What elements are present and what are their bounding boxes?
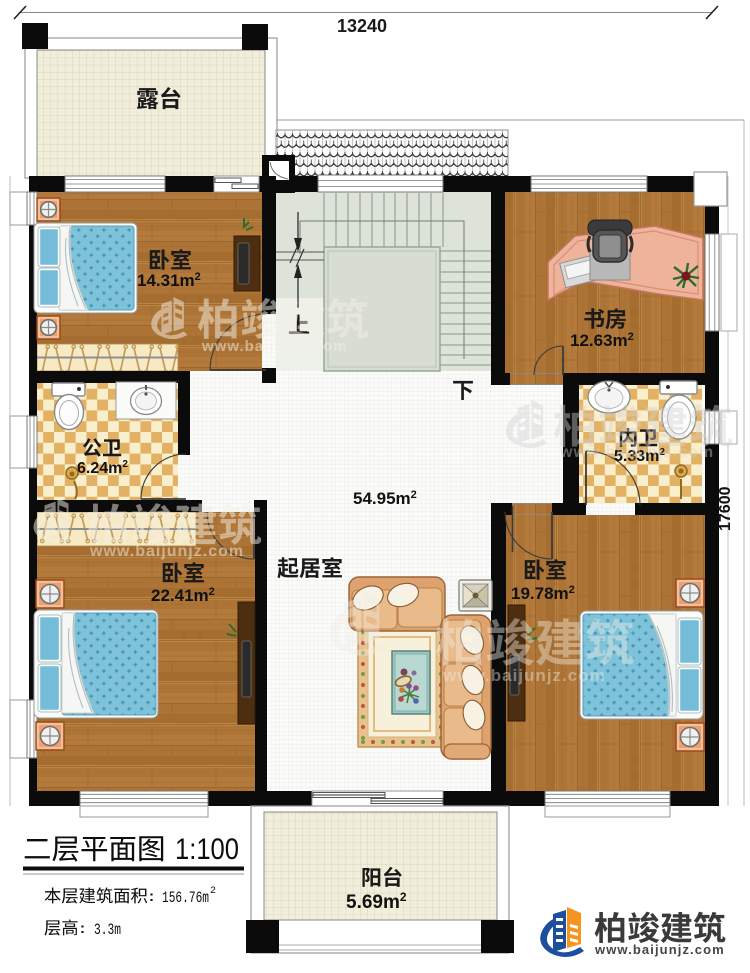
svg-text:13240: 13240 bbox=[337, 16, 387, 36]
svg-text::: : bbox=[149, 888, 154, 905]
svg-text:www.baijunjz.com: www.baijunjz.com bbox=[442, 666, 606, 685]
svg-text:14.31m2: 14.31m2 bbox=[137, 271, 201, 290]
svg-text:12.63m2: 12.63m2 bbox=[570, 331, 634, 350]
svg-text::: : bbox=[80, 920, 85, 937]
svg-text:17600: 17600 bbox=[717, 486, 734, 531]
svg-text:156.76m: 156.76m bbox=[162, 889, 209, 907]
svg-text:54.95m2: 54.95m2 bbox=[353, 489, 417, 508]
svg-text:5.69m2: 5.69m2 bbox=[346, 890, 407, 913]
svg-text:2: 2 bbox=[210, 886, 216, 897]
svg-text:www.baijunjz.com: www.baijunjz.com bbox=[559, 444, 714, 461]
svg-text:www.baijunjz.com: www.baijunjz.com bbox=[89, 543, 244, 560]
svg-text:www.baijunjz.com: www.baijunjz.com bbox=[201, 338, 347, 355]
svg-text:www.baijunjz.com: www.baijunjz.com bbox=[594, 942, 725, 957]
svg-text:1:100: 1:100 bbox=[175, 833, 239, 866]
svg-text:3.3m: 3.3m bbox=[94, 921, 121, 939]
svg-text:22.41m2: 22.41m2 bbox=[151, 586, 215, 605]
svg-text:6.24m2: 6.24m2 bbox=[77, 459, 128, 477]
svg-text:19.78m2: 19.78m2 bbox=[511, 584, 575, 603]
